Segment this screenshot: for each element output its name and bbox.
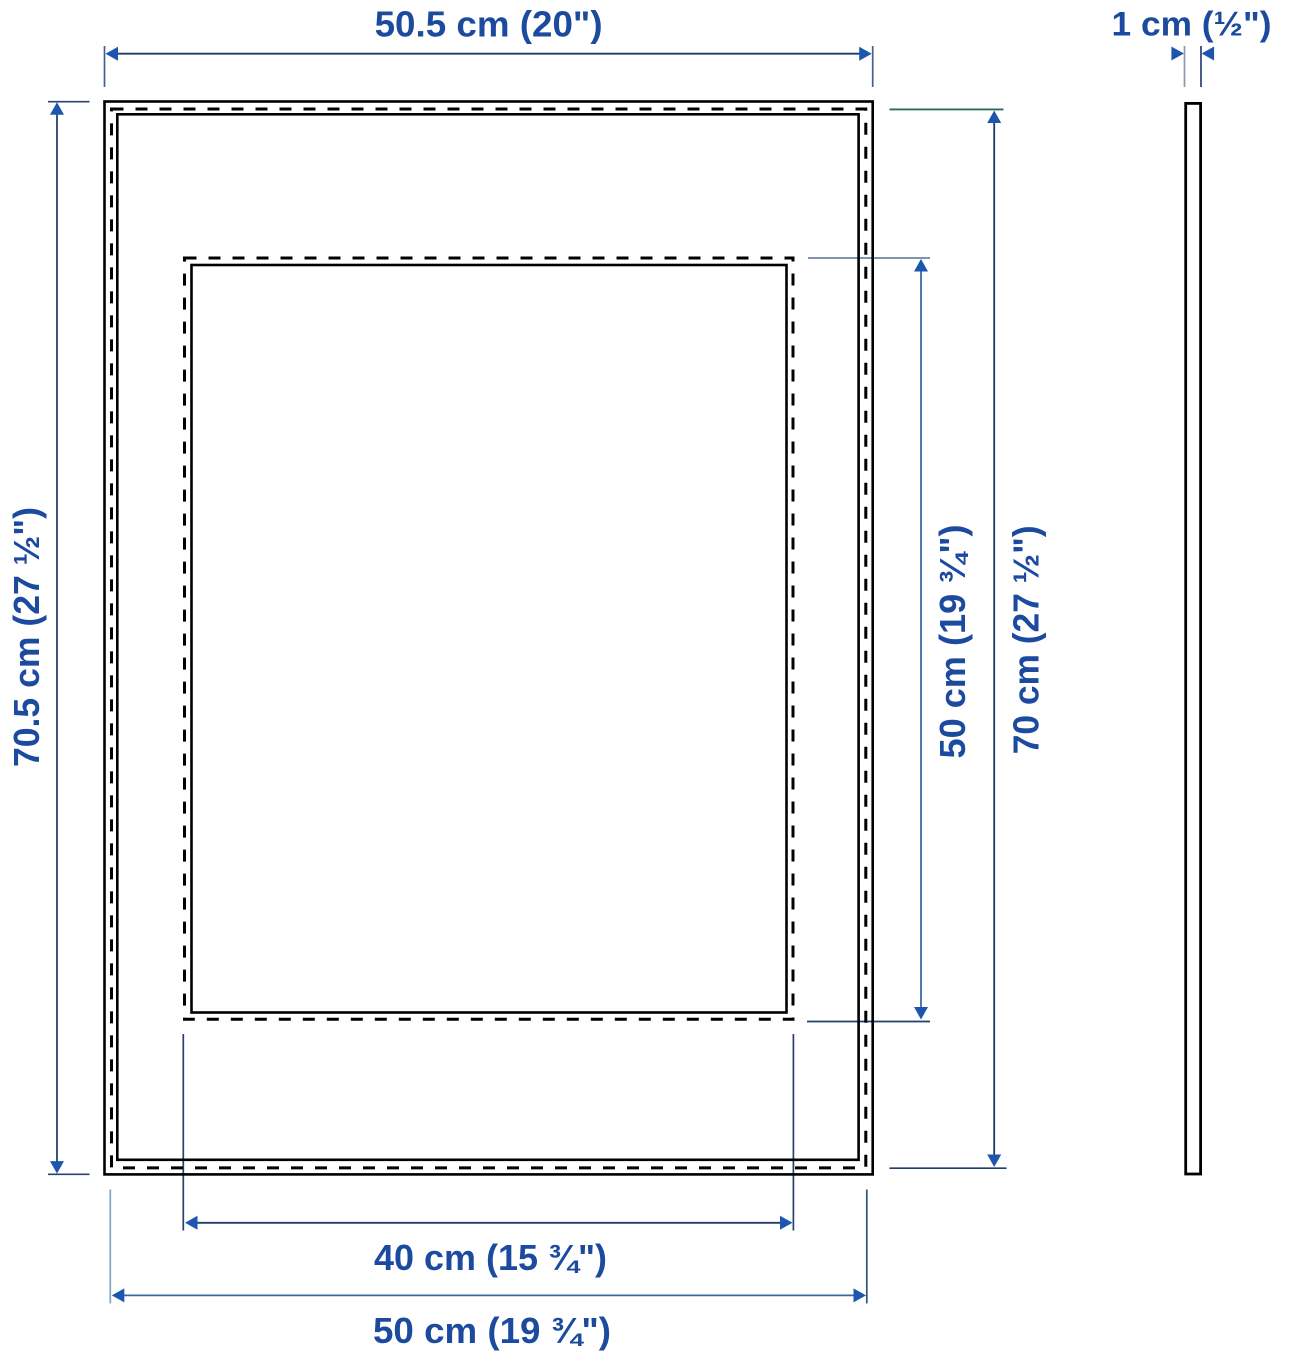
svg-text:40 cm (15 ¾"): 40 cm (15 ¾") — [374, 1237, 607, 1278]
svg-text:50 cm (19 ¾"): 50 cm (19 ¾") — [932, 525, 973, 759]
svg-text:1 cm (½"): 1 cm (½") — [1112, 6, 1272, 44]
svg-text:70.5 cm (27 ½"): 70.5 cm (27 ½") — [6, 507, 47, 767]
svg-text:50.5 cm (20"): 50.5 cm (20") — [375, 3, 603, 44]
svg-text:70 cm (27 ½"): 70 cm (27 ½") — [1006, 525, 1047, 754]
svg-text:50 cm (19 ¾"): 50 cm (19 ¾") — [373, 1310, 611, 1351]
